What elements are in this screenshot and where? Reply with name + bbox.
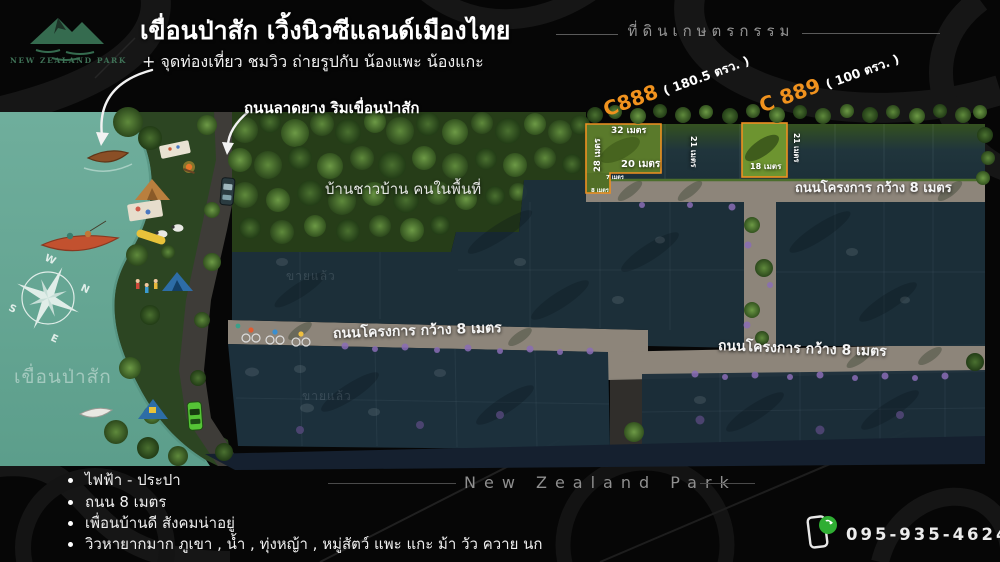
- dam-label: เขื่อนป่าสัก: [14, 367, 112, 388]
- feature-text: เพื่อนบ้านดี สังคมน่าอยู่: [85, 514, 235, 532]
- feature-text: ถนน 8 เมตร: [85, 493, 166, 511]
- sold-watermark: ขายแล้ว: [286, 270, 336, 283]
- feature-text: วิวหายากมาก ภูเขา , น้ำ , ทุ่งหญ้า , หมู…: [85, 535, 542, 553]
- park-name: New Zealand Park: [464, 474, 737, 492]
- phone-number: 095-935-4624: [846, 526, 1000, 544]
- dim-c888-bottom: 20 เมตร: [621, 159, 660, 170]
- bullet-dot: [68, 500, 73, 505]
- sold-watermark: ขายแล้ว: [302, 390, 352, 403]
- bullet-dot: [68, 521, 73, 526]
- dim-c889-right: 21 เมตร: [792, 133, 800, 162]
- phone-icon: [802, 512, 840, 552]
- bullet-dot: [68, 542, 73, 547]
- shore-road-label: ถนนลาดยาง ริมเขื่อนป่าสัก: [244, 100, 419, 117]
- feature-item: ไฟฟ้า - ประปา: [68, 468, 181, 492]
- village-label: บ้านชาวบ้าน คนในพื้นที่: [325, 181, 481, 198]
- bullet-dot: [68, 478, 73, 483]
- feature-text: ไฟฟ้า - ประปา: [85, 471, 181, 489]
- dim-c888-left: 28 เมตร: [594, 139, 603, 172]
- agri-line-right: [802, 33, 940, 34]
- road-label-top: ถนนโครงการ กว้าง 8 เมตร: [795, 182, 952, 196]
- feature-item: วิวหายากมาก ภูเขา , น้ำ , ทุ่งหญ้า , หมู…: [68, 532, 542, 556]
- logo-text: NEW ZEALAND PARK: [10, 57, 114, 65]
- page-subtitle: + จุดท่องเที่ยว ชมวิว ถ่ายรูปกับ น้องแพะ…: [142, 53, 484, 71]
- green-car: [187, 402, 203, 431]
- agri-line-left: [556, 34, 618, 35]
- park-line-left: [328, 483, 456, 484]
- poster: W N S E NEW ZEALAND PARK เขื่อนป่าสัก เว…: [0, 0, 1000, 562]
- dim-c888-top: 32 เมตร: [611, 127, 646, 137]
- dim-between-plots: 21 เมตร: [688, 136, 697, 167]
- agricultural-land-label: ที่ดินเกษตรกรรม: [625, 23, 797, 40]
- dark-car: [220, 177, 235, 205]
- dim-c888-small-a: 7 เมตร: [606, 175, 624, 181]
- dim-c889-bottom: 18 เมตร: [750, 163, 781, 172]
- park-line-right: [700, 483, 755, 484]
- dim-c888-small-b: 8 เมตร: [591, 188, 609, 194]
- page-title: เขื่อนป่าสัก เวิ้งนิวซีแลนด์เมืองไทย: [140, 17, 510, 45]
